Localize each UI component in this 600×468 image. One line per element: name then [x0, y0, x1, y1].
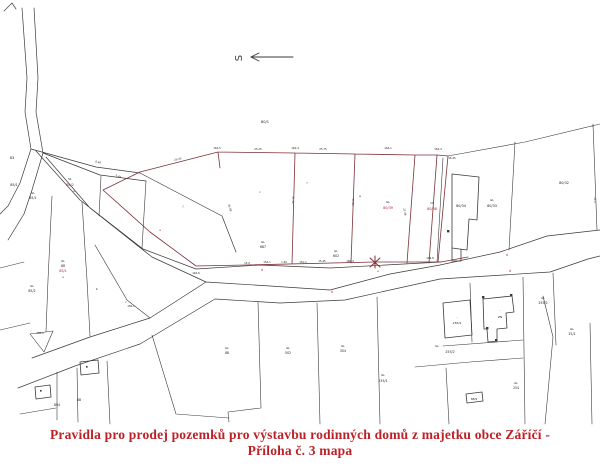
- parcel-label: 164-1: [384, 146, 392, 150]
- parcel-label: 88/2: [66, 183, 74, 187]
- parcel-label: ·: [456, 316, 457, 320]
- parcel-label: c: [125, 300, 127, 304]
- parcel-label: 154-1: [263, 260, 271, 264]
- parcel-label: b: [96, 287, 98, 291]
- parcel-label: GL: [225, 346, 229, 350]
- parcel-label: 80/1: [261, 120, 269, 124]
- parcel-label: 504: [340, 349, 346, 353]
- parcel-label: 37.12: [291, 196, 295, 204]
- parcel-label: 25.25: [254, 147, 262, 151]
- parcel-label: 83: [10, 156, 14, 160]
- left-parcel-lines: [0, 176, 229, 424]
- parcel-label: 164-4: [291, 146, 299, 150]
- parcel-label: 164-5: [213, 146, 221, 150]
- parcel-label: 1C: [430, 201, 434, 205]
- parcel-label: 254: [513, 386, 519, 390]
- parcel-label: e: [359, 194, 361, 198]
- parcel-label: 25/1: [568, 332, 575, 336]
- parcel-label: 80/39: [383, 206, 393, 210]
- parcel-label: d: [506, 253, 508, 257]
- parcel-label: ZN: [498, 315, 502, 319]
- parcel-label: 21.0: [593, 197, 597, 203]
- parcel-label: 8.48: [95, 159, 102, 164]
- parcel-label: GL: [261, 240, 265, 244]
- survey-mark: [40, 230, 512, 392]
- parcel-label: 16.45: [448, 156, 456, 160]
- parcel-label: GL: [386, 200, 390, 204]
- parcel-label: 85/1: [10, 183, 18, 187]
- parcel-label: 602: [333, 254, 339, 258]
- parcel-label: 88: [225, 351, 229, 355]
- north-arrow-line: [251, 53, 293, 61]
- parcel-label: ·: [499, 309, 500, 313]
- north-arrow: S: [234, 53, 293, 61]
- parcel-label: 151-1: [299, 260, 307, 264]
- parcel-label: GL: [381, 373, 385, 377]
- building-outline: [35, 174, 514, 403]
- parcel-label: e: [73, 189, 75, 193]
- scanned-map-page: S 8385/1GL85/1St.88/2e80/1jcefaGL687GL60…: [0, 0, 600, 468]
- parcel-label: 88/9: [471, 397, 478, 401]
- parcel-label: 164-4: [434, 147, 442, 151]
- parcel-label: 25.48: [227, 204, 233, 213]
- map-caption: Pravidla pro prodej pozemků pro výstavbu…: [0, 427, 600, 459]
- parcel-label: 166-4: [346, 259, 354, 263]
- caption-line-1: Pravidla pro prodej pozemků pro výstavbu…: [0, 427, 600, 443]
- parcel-label: GL: [490, 198, 494, 202]
- parcel-label: 255/4: [453, 321, 462, 325]
- parcel-label: GL: [514, 381, 518, 385]
- parcel-label: 37.85: [351, 198, 355, 206]
- parcel-label: 235/1: [378, 379, 387, 383]
- parcel-label: 15.45: [318, 259, 326, 263]
- parcel-label: e: [62, 275, 64, 279]
- parcel-label: 80/34: [456, 204, 466, 208]
- north-label: S: [234, 55, 245, 61]
- road-lines: [0, 3, 600, 388]
- parcel-label: d: [331, 290, 333, 294]
- parcel-label: 25.45: [174, 156, 182, 162]
- parcel-label: e: [377, 269, 379, 273]
- parcel-label: 85/2: [28, 289, 35, 293]
- parcel-label: 15.0: [244, 261, 250, 265]
- parcel-label: GL: [341, 344, 345, 348]
- parcel-label: 894: [54, 403, 60, 407]
- parcel-label: 5.45: [115, 173, 122, 179]
- parcel-label: c: [259, 190, 261, 194]
- parcel-label: 80/33: [487, 204, 497, 208]
- parcel-label: St.: [68, 177, 72, 181]
- parcel-label: GL: [435, 344, 439, 348]
- parcel-label: GL: [286, 346, 290, 350]
- parcel-label: 502: [285, 351, 291, 355]
- highlighted-parcels: [103, 152, 468, 268]
- survey-marks: [40, 230, 512, 392]
- parcel-label: 88: [61, 264, 65, 268]
- parcel-label: 156-1: [127, 304, 135, 308]
- buildings: [35, 174, 514, 403]
- parcel-label: d: [261, 268, 263, 272]
- parcel-label: 25.75: [319, 147, 327, 151]
- parcel-label: 255/2: [538, 301, 547, 305]
- parcel-label: 158-2: [36, 331, 44, 335]
- parcel-boundary: [0, 176, 229, 424]
- caption-line-2: Příloha č. 3 mapa: [0, 443, 600, 459]
- parcel-label: 164-8: [426, 256, 434, 260]
- parcel-label: 1.40: [281, 260, 287, 264]
- parcel-label: GL: [31, 191, 35, 195]
- cadastral-map: S 8385/1GL85/1St.88/2e80/1jcefaGL687GL60…: [0, 0, 600, 428]
- parcel-label: 88: [77, 398, 81, 402]
- parcel-label: j: [182, 204, 184, 208]
- parcel-label: GL: [30, 284, 34, 288]
- parcel-label: 85/1: [29, 196, 36, 200]
- parcel-label: d: [509, 269, 511, 273]
- parcel-label: 164-6: [192, 271, 200, 275]
- parcel-label: 85/1: [59, 269, 67, 273]
- highlight-boundary: [103, 152, 468, 266]
- parcel-label: 255/2: [445, 350, 454, 354]
- parcel-label: GL: [61, 259, 65, 263]
- parcel-label: f: [306, 181, 308, 185]
- parcel-boundary: [0, 3, 600, 388]
- parcel-label: GL: [334, 249, 338, 253]
- parcel-label: 80/32: [559, 181, 569, 185]
- parcel-label: GL: [570, 327, 574, 331]
- parcel-label: 80/38: [427, 207, 437, 211]
- parcel-label: a: [159, 228, 161, 232]
- parcel-label: GL: [541, 296, 545, 300]
- parcel-label: 687: [260, 245, 266, 249]
- parcel-label: 21.48: [402, 208, 408, 216]
